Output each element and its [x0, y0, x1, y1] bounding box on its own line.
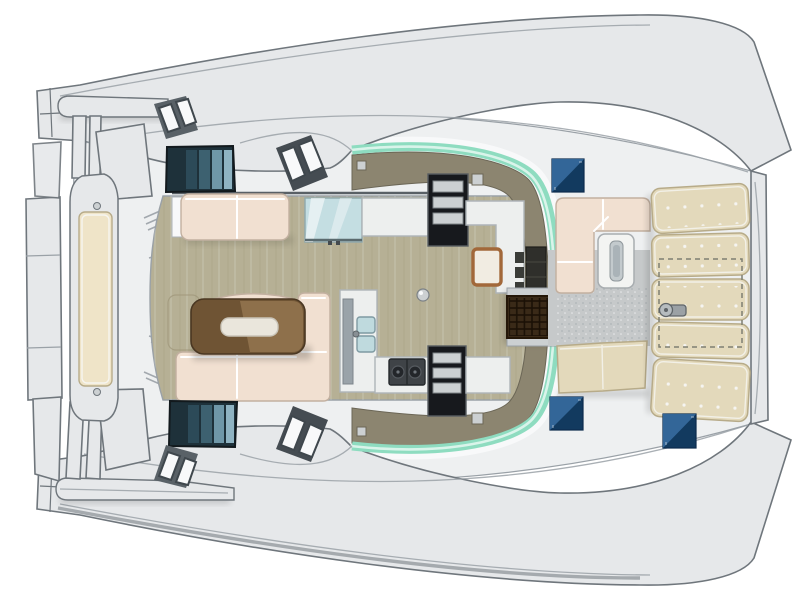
- stairs-port-step-3: [433, 213, 463, 224]
- floor-cap-highlight: [419, 291, 423, 295]
- sunpad-2-tufts: [658, 240, 744, 271]
- bench-bolt-top: [94, 203, 101, 210]
- stairs-starboard-step-3: [433, 383, 461, 393]
- davit-bar-top: [58, 96, 168, 117]
- roof-vent-bottom-2: [472, 413, 483, 424]
- window-top-pane-2: [199, 150, 210, 189]
- port-hull-window: [166, 146, 235, 192]
- stairs-port-step-1: [433, 181, 463, 192]
- port-transom-face: [33, 142, 61, 198]
- dining-table-tray: [221, 318, 278, 336]
- counter-bottom-right: [466, 357, 510, 393]
- chart-table-handle-1: [328, 241, 332, 245]
- sunpad-5-tufts: [657, 365, 745, 414]
- cabinet-drawer-2: [515, 267, 524, 278]
- sink-basin-2: [357, 336, 375, 352]
- galley-panel: [343, 299, 353, 384]
- nav-seat: [473, 249, 501, 285]
- cockpit-table-slot: [613, 245, 620, 277]
- stairs-starboard-step-2: [433, 368, 461, 378]
- foredeck-sunpads: [647, 183, 751, 422]
- sunpad-1-tufts: [657, 190, 744, 228]
- window-bottom-pane-1: [188, 405, 199, 443]
- deck-hatch-bottom-1: [550, 397, 583, 430]
- roof-vent-top-1: [357, 161, 366, 170]
- sunpad-4-tufts: [658, 328, 744, 354]
- floor-cap: [417, 289, 429, 301]
- cockpit-floor-texture: [556, 288, 648, 344]
- sink-basin-1: [357, 317, 375, 333]
- windlass: [660, 304, 687, 317]
- counter-top-mid: [362, 198, 428, 236]
- deck-hatch-top: [552, 159, 584, 192]
- window-top-pane-3: [212, 150, 222, 189]
- bench-bolt-bottom: [94, 389, 101, 396]
- companionway-stairs-starboard: [428, 346, 466, 416]
- stairs-port-step-2: [433, 197, 463, 208]
- top-sofa: [181, 194, 289, 240]
- starboard-transom-face: [33, 397, 61, 481]
- fridge-column: [526, 247, 546, 293]
- dining-group: [168, 293, 330, 401]
- bow-beam: [751, 171, 768, 424]
- starboard-hull-window: [169, 401, 237, 447]
- stern-post-1: [72, 116, 86, 178]
- forward-cockpit: [548, 198, 650, 397]
- window-bottom-pane-2: [201, 405, 212, 443]
- windlass-drum-center: [664, 308, 668, 312]
- stove-burner-1-cap: [396, 370, 399, 373]
- window-top-pane-1: [186, 150, 197, 189]
- sink-faucet: [353, 331, 359, 337]
- catamaran-deck-plan: [0, 0, 800, 600]
- companionway-stairs-port: [428, 174, 468, 246]
- cabinet-drawer-1: [515, 252, 524, 263]
- roof-vent-top-2: [472, 174, 483, 185]
- chart-table: [305, 198, 362, 245]
- bow-beam-face: [751, 171, 768, 424]
- stove-burner-2-cap: [413, 370, 416, 373]
- stern-bench-cushion: [79, 212, 112, 386]
- window-top-pane-4: [224, 150, 232, 189]
- roof-vent-bottom-1: [357, 427, 366, 436]
- deck-hatch-bottom-2: [663, 414, 696, 448]
- stairs-starboard-step-1: [433, 353, 461, 363]
- aft-crossbeam: [26, 197, 62, 400]
- window-bottom-pane-4: [226, 405, 234, 443]
- plan-canvas: [0, 0, 800, 600]
- window-bottom-pane-3: [214, 405, 224, 443]
- chart-table-handle-2: [336, 241, 340, 245]
